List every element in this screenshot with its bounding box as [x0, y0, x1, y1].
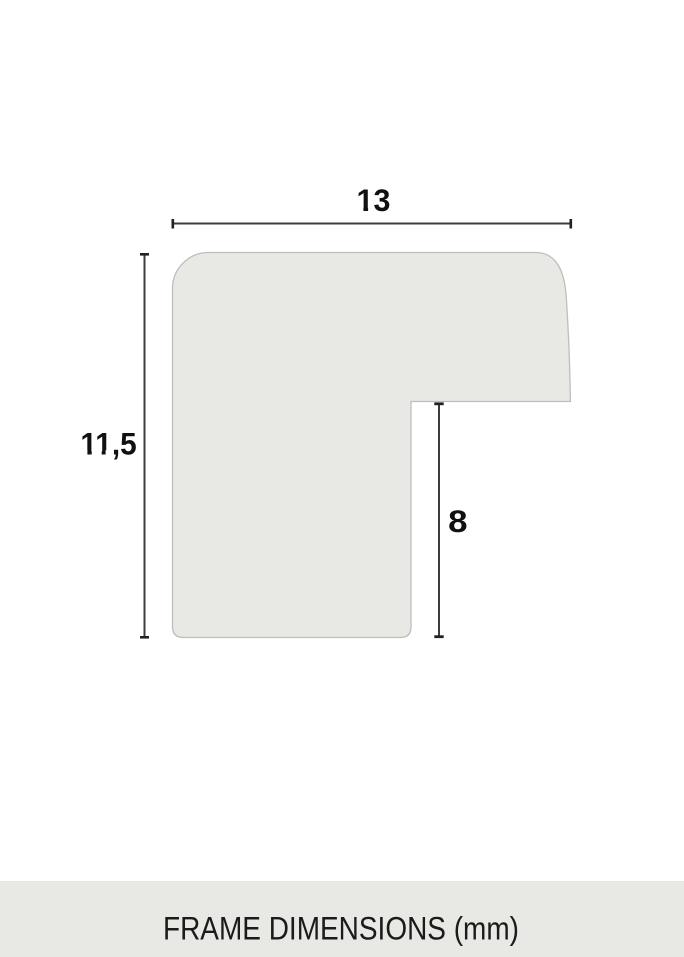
svg-text:13: 13 [357, 182, 391, 218]
svg-text:8: 8 [448, 503, 467, 539]
svg-text:11,5: 11,5 [80, 425, 136, 461]
svg-text:FRAME DIMENSIONS (mm): FRAME DIMENSIONS (mm) [163, 910, 519, 946]
